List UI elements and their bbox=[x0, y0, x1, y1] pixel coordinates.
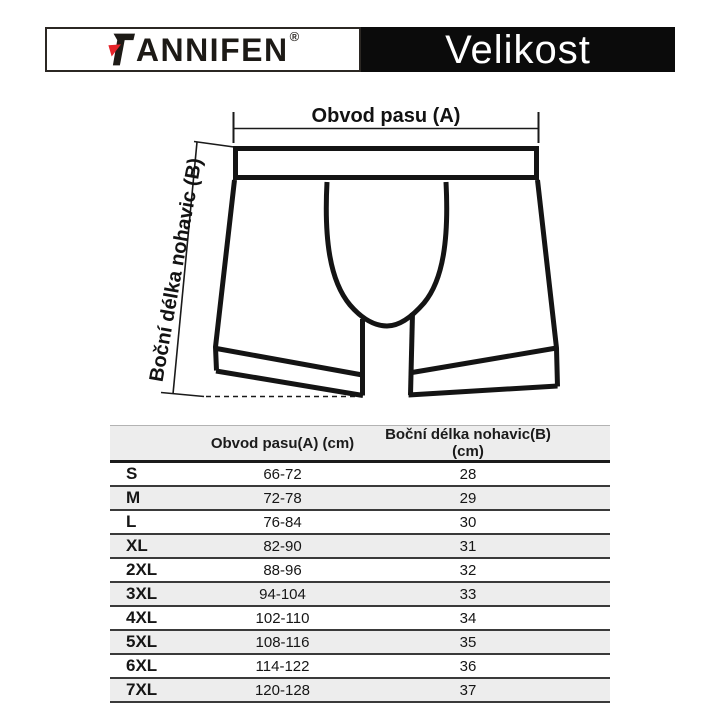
length-value: 35 bbox=[370, 630, 610, 654]
registered-trademark-icon: ® bbox=[290, 30, 300, 43]
crotch-seam-curve bbox=[326, 182, 446, 326]
size-label: 3XL bbox=[110, 582, 195, 606]
size-label: M bbox=[110, 486, 195, 510]
col-header-size bbox=[110, 426, 195, 462]
table-row-6xl: 6XL 114-122 36 bbox=[110, 654, 610, 678]
table-row-2xl: 2XL 88-96 32 bbox=[110, 558, 610, 582]
length-dimension-label: Boční délka nohavic (B) bbox=[146, 156, 207, 383]
length-value: 37 bbox=[370, 678, 610, 702]
table-row-3xl: 3XL 94-104 33 bbox=[110, 582, 610, 606]
length-value: 31 bbox=[370, 534, 610, 558]
waist-dimension-label: Obvod pasu (A) bbox=[312, 105, 461, 127]
waist-value: 94-104 bbox=[195, 582, 370, 606]
waist-value: 82-90 bbox=[195, 534, 370, 558]
size-label: 7XL bbox=[110, 678, 195, 702]
length-value: 34 bbox=[370, 606, 610, 630]
size-label: XL bbox=[110, 534, 195, 558]
size-label: S bbox=[110, 462, 195, 487]
length-value: 32 bbox=[370, 558, 610, 582]
waistband bbox=[236, 149, 537, 178]
waist-value: 72-78 bbox=[195, 486, 370, 510]
size-table-header-row: Obvod pasu(A) (cm) Boční délka nohavic(B… bbox=[110, 426, 610, 462]
waist-value: 76-84 bbox=[195, 510, 370, 534]
brand-name: ANNIFEN bbox=[136, 34, 289, 66]
waist-value: 102-110 bbox=[195, 606, 370, 630]
shorts-measurement-diagram: Obvod pasu (A) Boční délka nohavic (B) bbox=[140, 85, 600, 415]
waist-value: 120-128 bbox=[195, 678, 370, 702]
length-value: 30 bbox=[370, 510, 610, 534]
boxer-shorts-outline bbox=[216, 149, 558, 396]
length-value: 28 bbox=[370, 462, 610, 487]
size-table-body: S 66-72 28 M 72-78 29 L 76-84 30 XL 82-9… bbox=[110, 462, 610, 703]
length-value: 33 bbox=[370, 582, 610, 606]
size-label: 6XL bbox=[110, 654, 195, 678]
length-value: 36 bbox=[370, 654, 610, 678]
table-row-4xl: 4XL 102-110 34 bbox=[110, 606, 610, 630]
col-header-length: Boční délka nohavic(B) (cm) bbox=[370, 426, 610, 462]
page-title: Velikost bbox=[445, 30, 591, 70]
waist-value: 66-72 bbox=[195, 462, 370, 487]
size-label: L bbox=[110, 510, 195, 534]
size-chart-page: ANNIFEN ® Velikost Obvod pasu (A) Boční bbox=[0, 0, 720, 720]
waist-value: 114-122 bbox=[195, 654, 370, 678]
table-row-5xl: 5XL 108-116 35 bbox=[110, 630, 610, 654]
brand-letter-f-icon bbox=[107, 33, 135, 66]
waist-value: 88-96 bbox=[195, 558, 370, 582]
col-header-waist: Obvod pasu(A) (cm) bbox=[195, 426, 370, 462]
brand-logo-box: ANNIFEN ® bbox=[45, 27, 361, 72]
size-label: 2XL bbox=[110, 558, 195, 582]
page-title-box: Velikost bbox=[361, 27, 675, 72]
header-banner: ANNIFEN ® Velikost bbox=[45, 27, 675, 72]
length-value: 29 bbox=[370, 486, 610, 510]
table-row-s: S 66-72 28 bbox=[110, 462, 610, 487]
table-row-7xl: 7XL 120-128 37 bbox=[110, 678, 610, 702]
table-row-xl: XL 82-90 31 bbox=[110, 534, 610, 558]
size-table: Obvod pasu(A) (cm) Boční délka nohavic(B… bbox=[110, 425, 610, 703]
table-row-l: L 76-84 30 bbox=[110, 510, 610, 534]
size-label: 4XL bbox=[110, 606, 195, 630]
waist-value: 108-116 bbox=[195, 630, 370, 654]
size-label: 5XL bbox=[110, 630, 195, 654]
table-row-m: M 72-78 29 bbox=[110, 486, 610, 510]
